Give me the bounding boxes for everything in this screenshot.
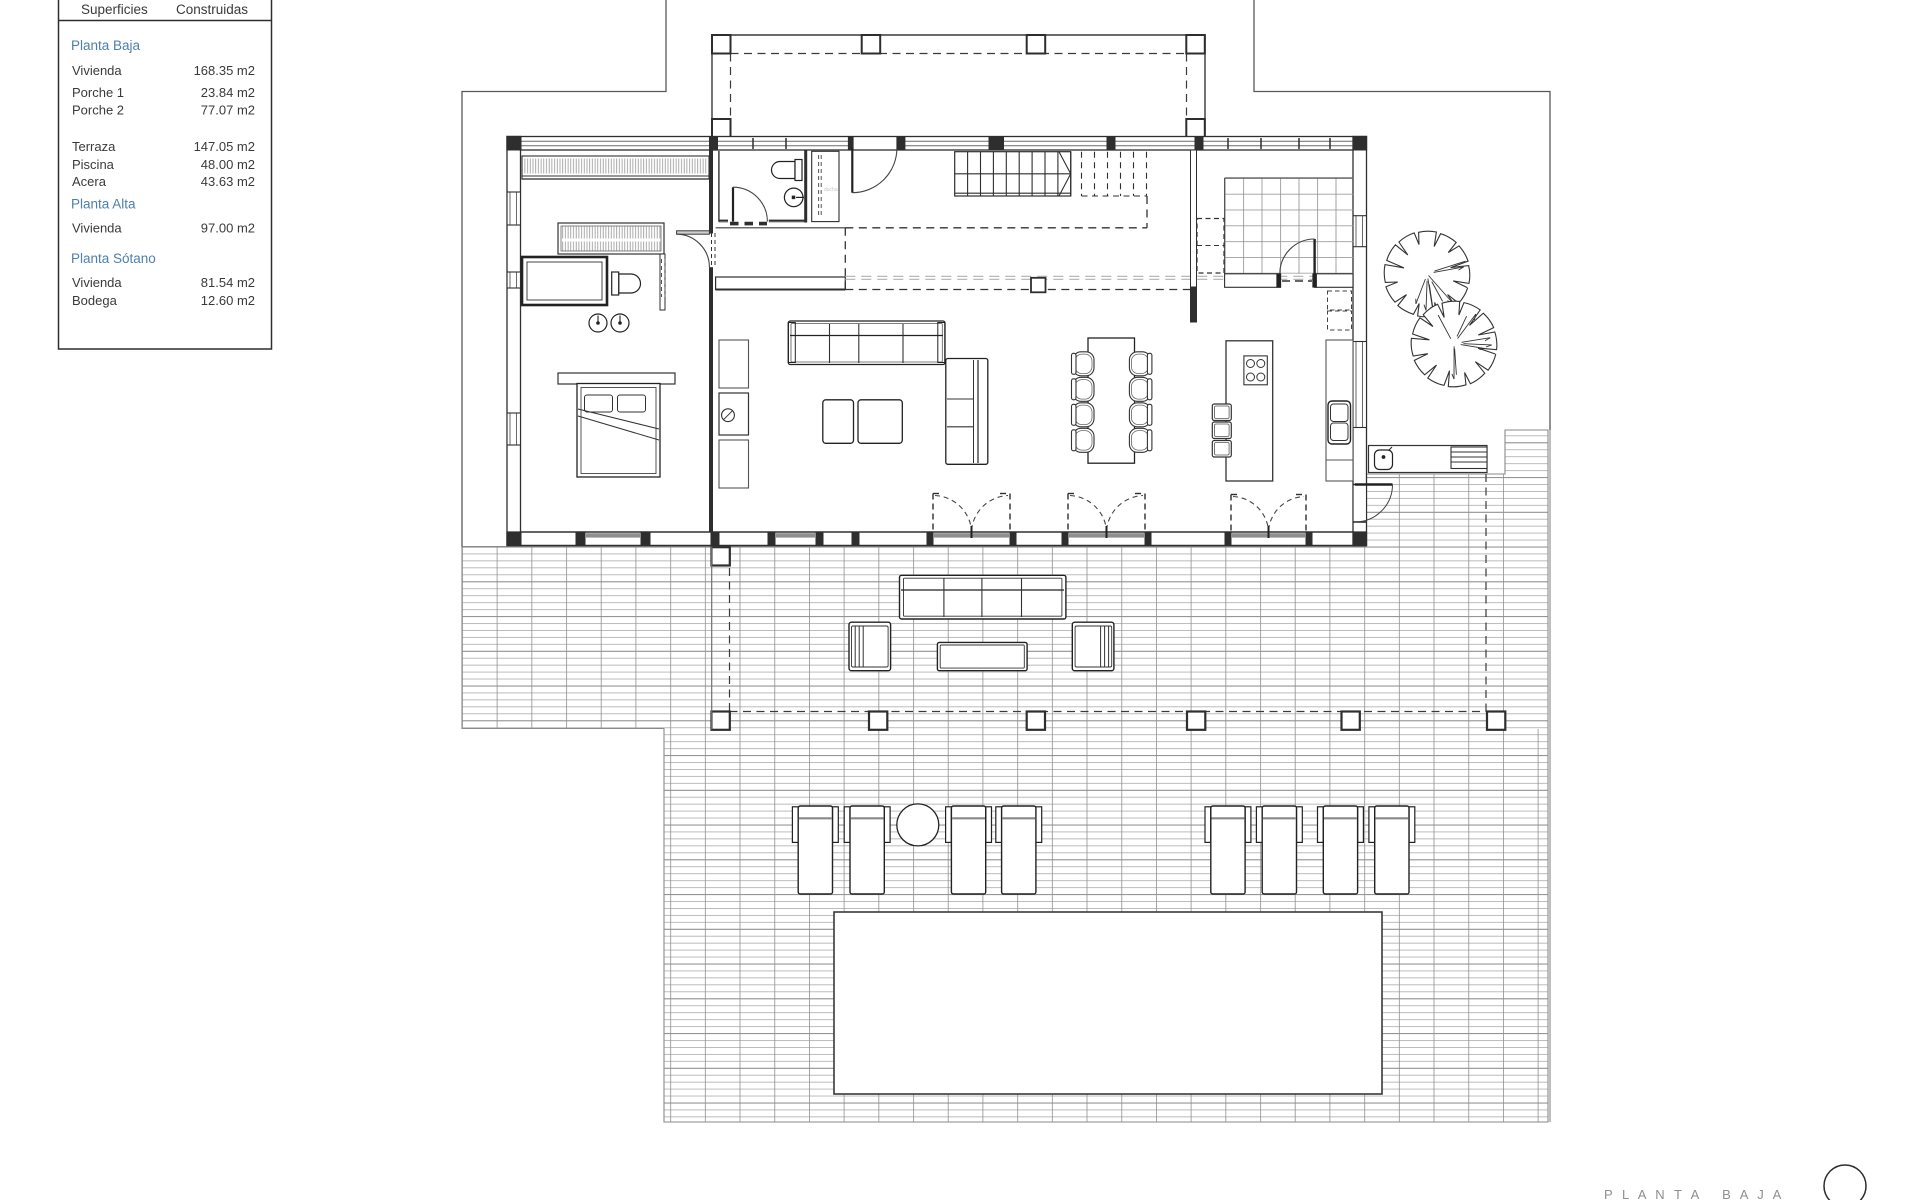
svg-text:48.00 m2: 48.00 m2 [201, 157, 255, 172]
svg-text:Planta Sótano: Planta Sótano [71, 251, 156, 266]
svg-text:Vivienda: Vivienda [72, 221, 122, 236]
svg-text:23.84 m2: 23.84 m2 [201, 85, 255, 100]
svg-text:Piscina: Piscina [72, 157, 115, 172]
svg-text:Vivienda: Vivienda [72, 63, 122, 78]
svg-text:Planta Alta: Planta Alta [71, 197, 136, 212]
svg-text:P L A N T A B A J A: P L A N T A B A J A [1604, 1187, 1784, 1200]
svg-text:Porche 2: Porche 2 [72, 103, 124, 118]
svg-text:Construidas: Construidas [176, 2, 248, 17]
svg-text:97.00 m2: 97.00 m2 [201, 221, 255, 236]
svg-text:Planta Baja: Planta Baja [71, 38, 141, 53]
svg-text:Acera: Acera [72, 174, 107, 189]
svg-text:43.63 m2: 43.63 m2 [201, 174, 255, 189]
svg-text:Superficies: Superficies [81, 2, 148, 17]
svg-text:147.05 m2: 147.05 m2 [194, 139, 255, 154]
svg-text:Porche 1: Porche 1 [72, 85, 124, 100]
svg-text:ducha: ducha [824, 187, 838, 193]
svg-text:168.35 m2: 168.35 m2 [194, 63, 255, 78]
svg-text:81.54 m2: 81.54 m2 [201, 275, 255, 290]
svg-text:12.60 m2: 12.60 m2 [201, 293, 255, 308]
svg-text:Terraza: Terraza [72, 139, 116, 154]
svg-text:77.07 m2: 77.07 m2 [201, 103, 255, 118]
svg-text:Vivienda: Vivienda [72, 275, 122, 290]
svg-text:Bodega: Bodega [72, 293, 118, 308]
